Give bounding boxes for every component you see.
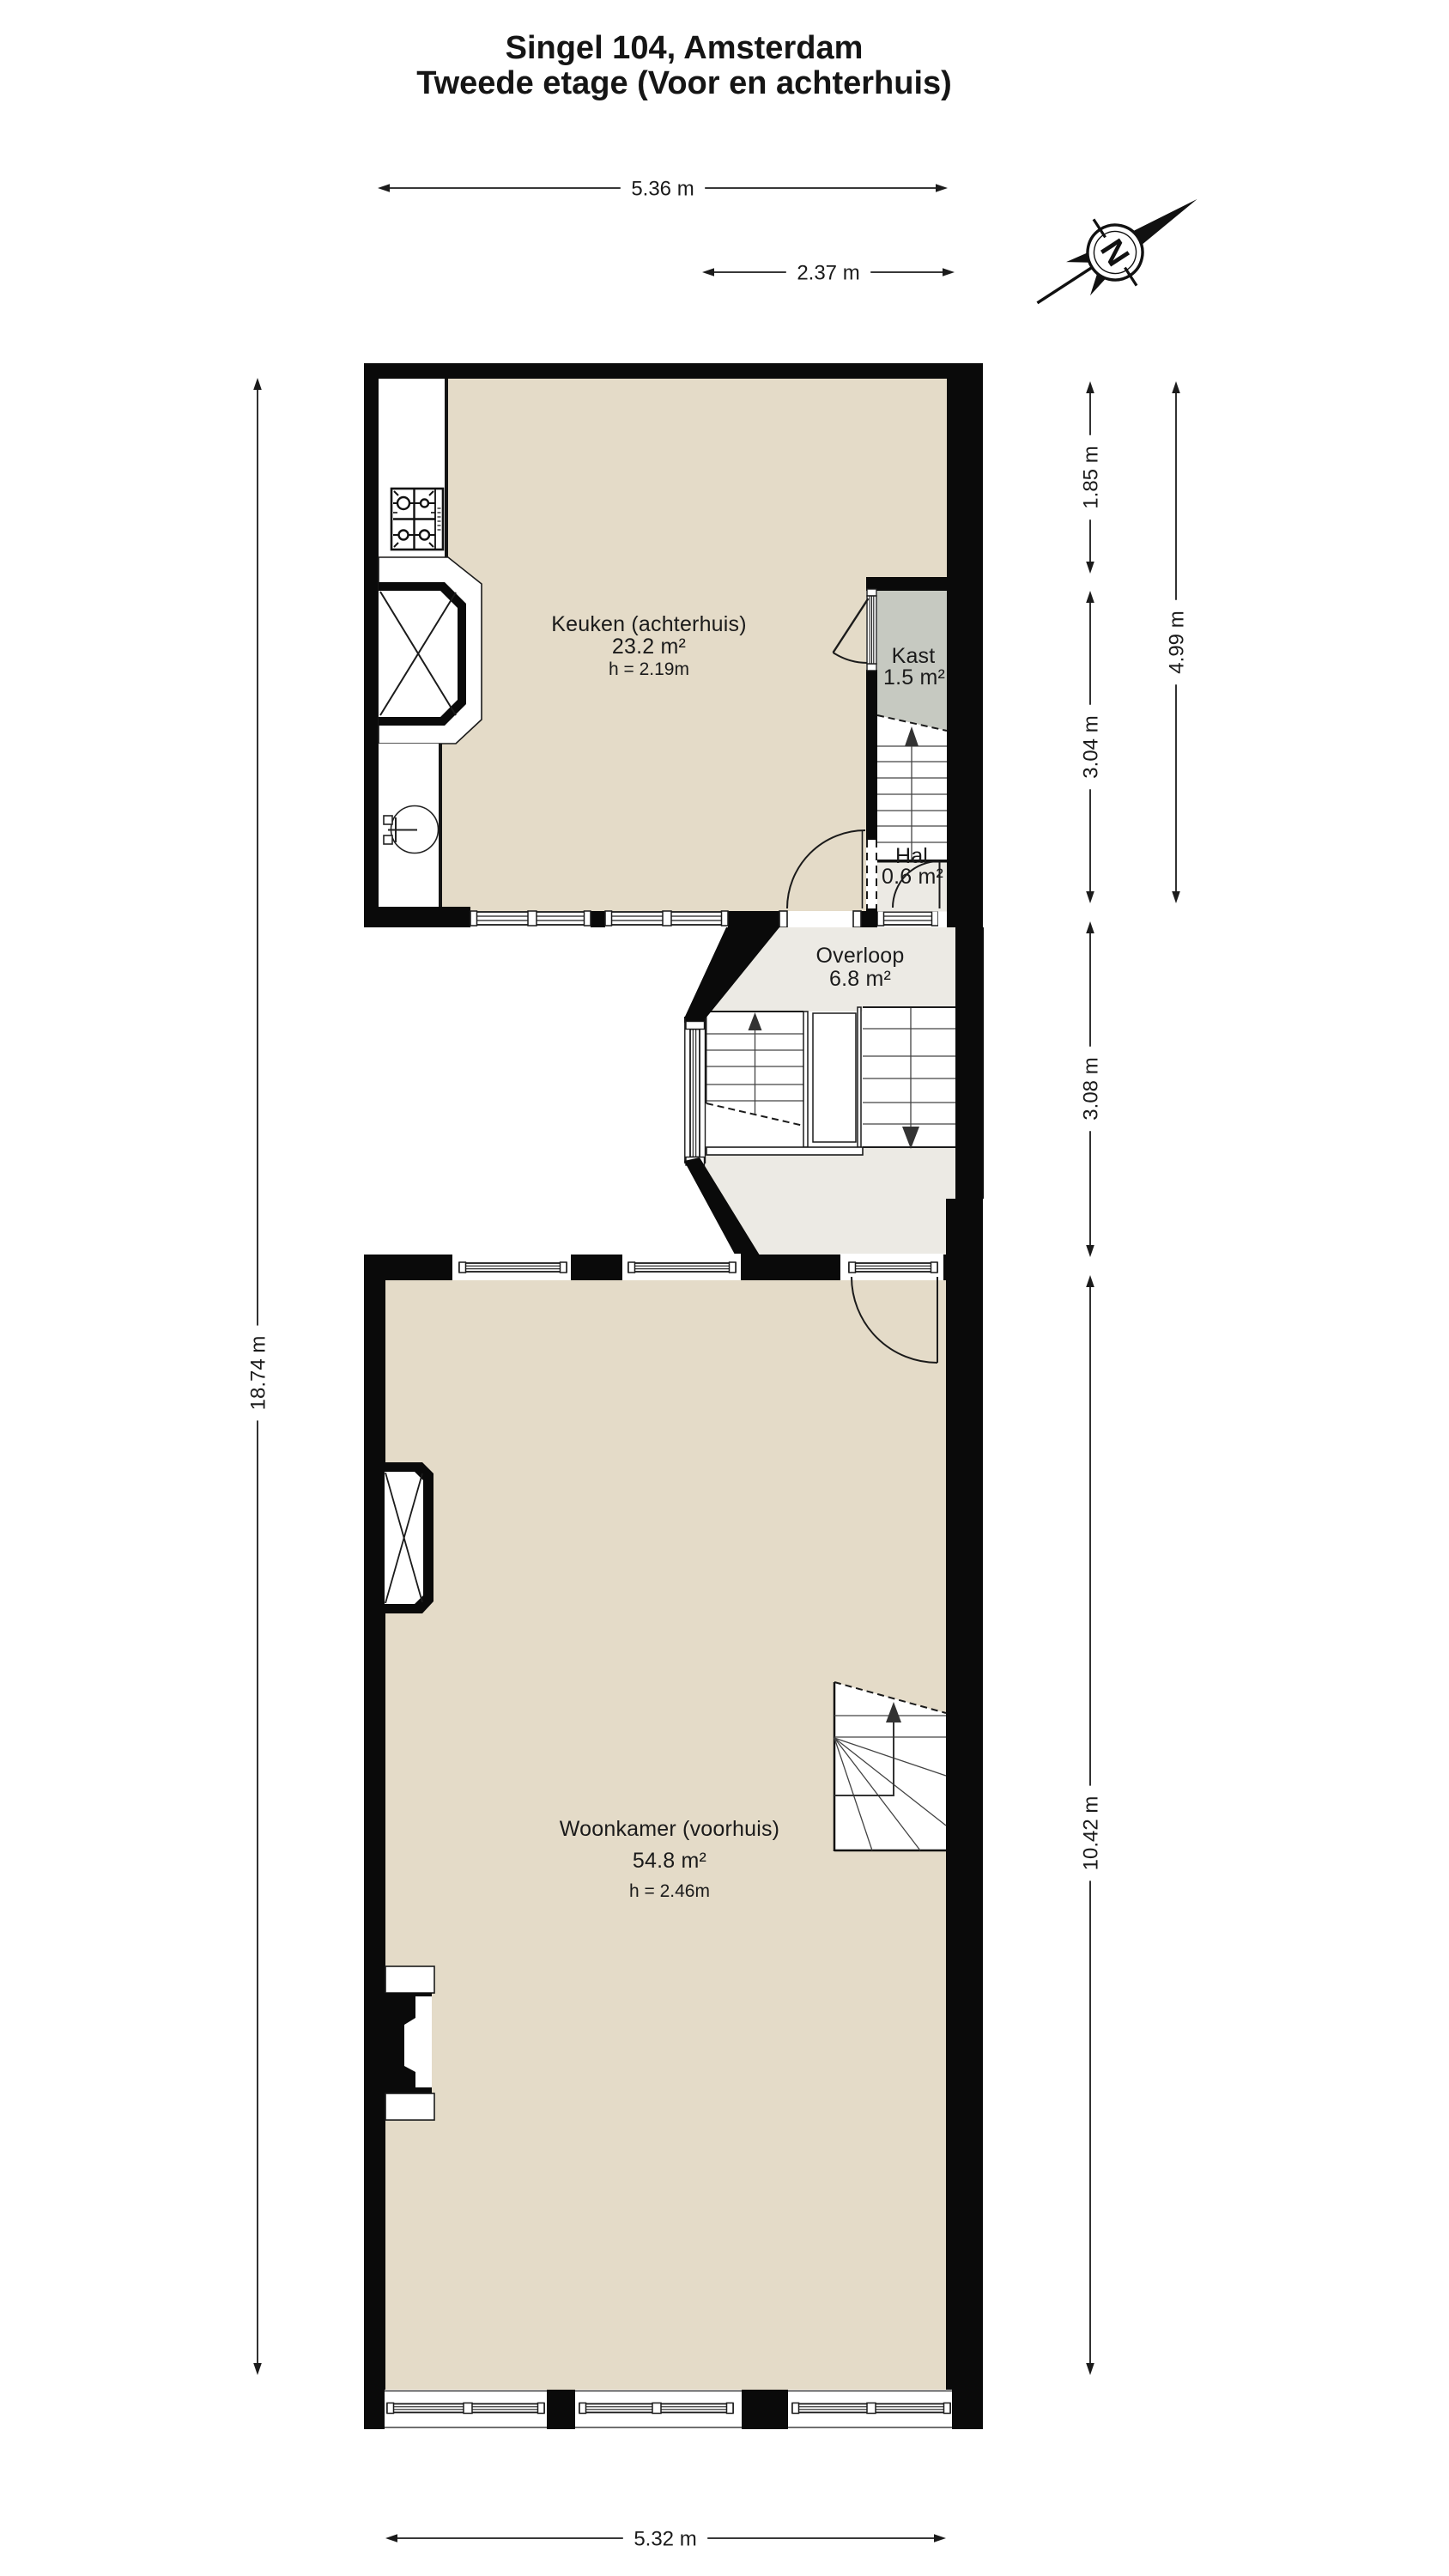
svg-text:4.99 m: 4.99 m <box>1166 611 1189 673</box>
svg-text:h = 2.19m: h = 2.19m <box>609 659 689 679</box>
svg-text:Singel 104, Amsterdam: Singel 104, Amsterdam <box>506 30 864 66</box>
svg-text:2.37 m: 2.37 m <box>797 262 859 285</box>
svg-text:Tweede etage (Voor en achterhu: Tweede etage (Voor en achterhuis) <box>416 65 952 101</box>
svg-text:5.36 m: 5.36 m <box>631 178 694 201</box>
svg-text:10.42 m: 10.42 m <box>1080 1796 1103 1871</box>
svg-text:3.08 m: 3.08 m <box>1080 1057 1103 1120</box>
svg-text:0.6 m²: 0.6 m² <box>882 865 943 889</box>
svg-text:3.04 m: 3.04 m <box>1080 715 1103 778</box>
svg-text:23.2 m²: 23.2 m² <box>612 635 686 659</box>
svg-text:Keuken (achterhuis): Keuken (achterhuis) <box>551 612 747 636</box>
svg-text:Kast: Kast <box>892 644 936 668</box>
svg-text:18.74 m: 18.74 m <box>247 1336 270 1411</box>
svg-text:6.8 m²: 6.8 m² <box>829 967 891 991</box>
svg-text:Woonkamer (voorhuis): Woonkamer (voorhuis) <box>560 1817 779 1841</box>
svg-text:54.8 m²: 54.8 m² <box>633 1849 706 1873</box>
svg-text:1.5 m²: 1.5 m² <box>883 665 945 690</box>
svg-text:5.32 m: 5.32 m <box>634 2528 696 2551</box>
svg-text:Overloop: Overloop <box>815 944 904 968</box>
svg-text:1.85 m: 1.85 m <box>1080 446 1103 508</box>
svg-text:h = 2.46m: h = 2.46m <box>629 1881 710 1901</box>
